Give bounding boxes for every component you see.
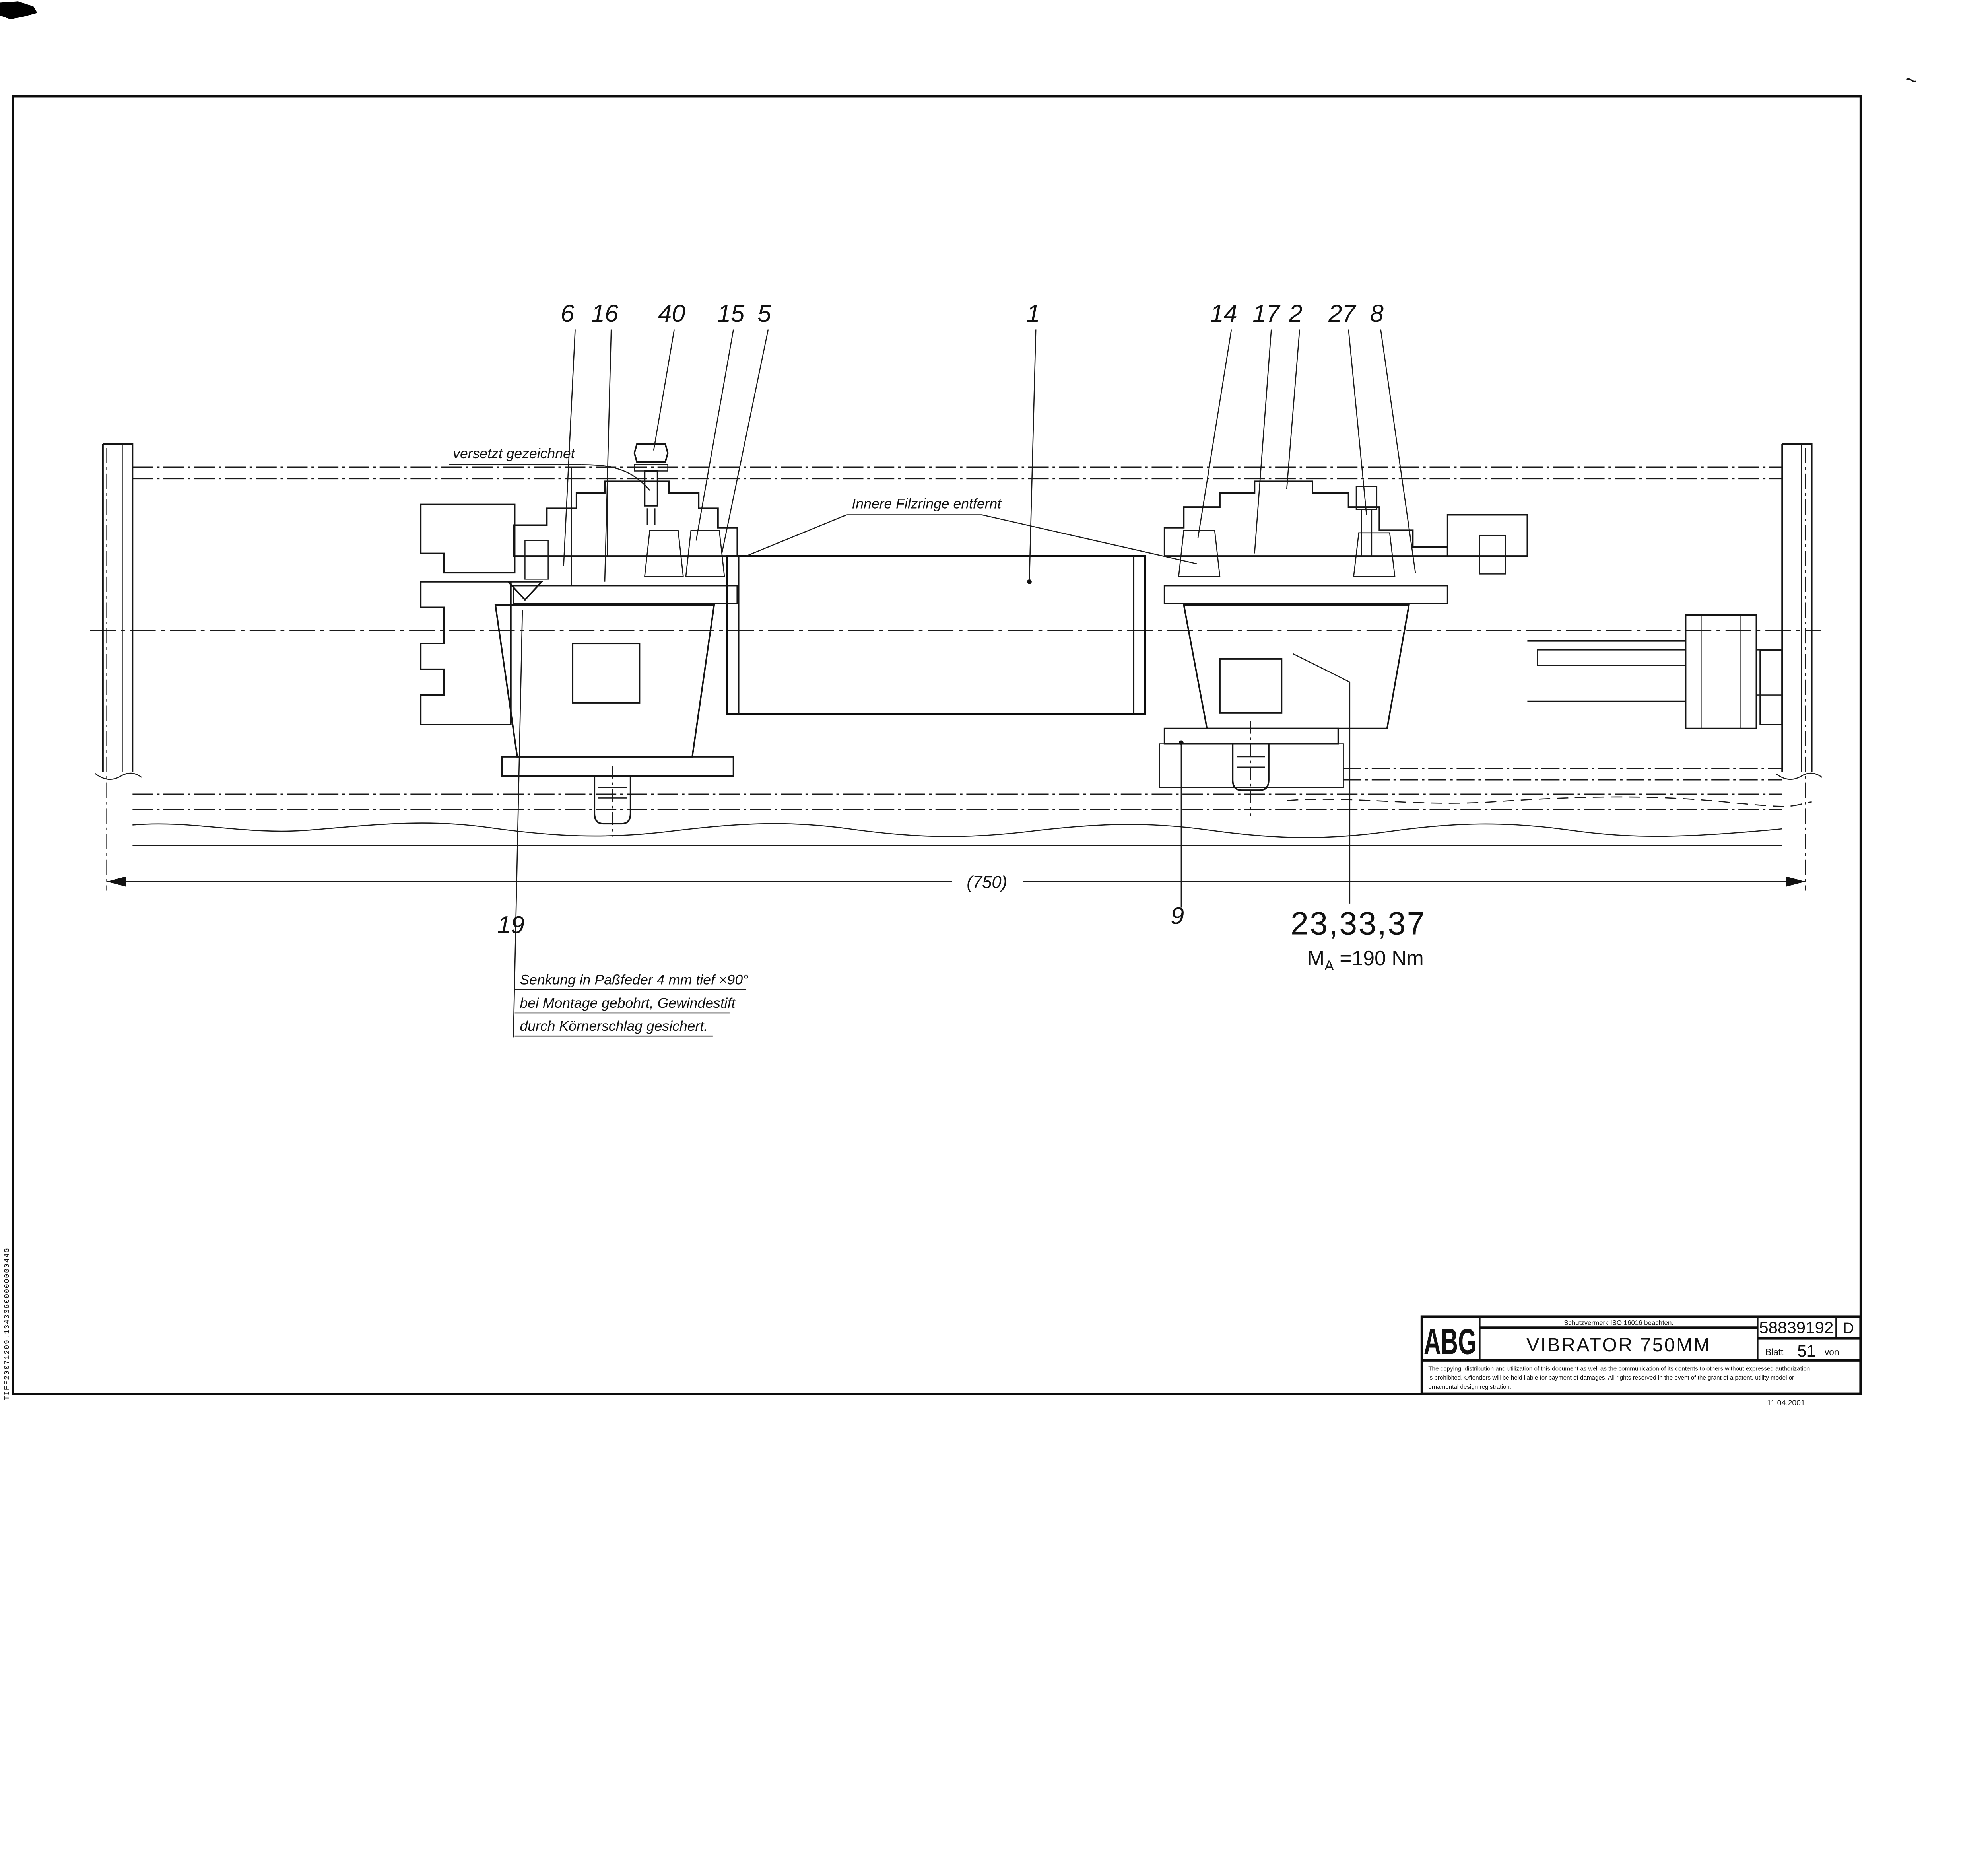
- technical-drawing-sheet: ~ TIFF20071209.1343360000000044G: [0, 0, 1988, 1407]
- sheet-number: 51: [1797, 1341, 1816, 1360]
- protection-note: Schutzvermerk ISO 16016 beachten.: [1564, 1319, 1673, 1327]
- part-label-40: 40: [658, 300, 685, 327]
- scan-edge-id-text: TIFF20071209.1343360000000044G: [4, 1248, 12, 1400]
- part-label-19: 19: [497, 911, 524, 939]
- part-label-8: 8: [1370, 300, 1384, 327]
- part-label-16: 16: [591, 300, 619, 327]
- torque-symbol: M: [1307, 947, 1324, 970]
- note-line-1: Senkung in Paßfeder 4 mm tief ×90°: [520, 972, 748, 988]
- legal-line-2: is prohibited. Offenders will be held li…: [1428, 1374, 1794, 1381]
- part-label-27: 27: [1328, 300, 1357, 327]
- abg-logo: ABG: [1424, 1322, 1477, 1362]
- sheet-label: Blatt: [1765, 1347, 1784, 1357]
- paper-background: [0, 0, 1988, 1407]
- part-label-5: 5: [757, 300, 771, 327]
- annotation-filzringe-text: Innere Filzringe entfernt: [852, 496, 1002, 511]
- part-label-17: 17: [1252, 300, 1281, 327]
- sheet-of-label: von: [1825, 1347, 1839, 1357]
- dimension-750-value: (750): [967, 873, 1007, 892]
- part-label-6: 6: [561, 300, 575, 327]
- part-label-15: 15: [717, 300, 745, 327]
- part-label-2: 2: [1289, 300, 1303, 327]
- group-label-23-33-37: 23,33,37: [1291, 906, 1426, 942]
- document-number: 58839192: [1759, 1318, 1833, 1337]
- drawing-title: VIBRATOR 750MM: [1526, 1334, 1711, 1356]
- revision-letter: D: [1843, 1320, 1854, 1337]
- title-block: ABG Schutzvermerk ISO 16016 beachten. VI…: [1422, 1317, 1861, 1407]
- part-label-14: 14: [1210, 300, 1237, 327]
- torque-value: =190 Nm: [1334, 947, 1424, 970]
- note-line-3: durch Körnerschlag gesichert.: [520, 1018, 708, 1034]
- legal-line-3: ornamental design registration.: [1428, 1384, 1511, 1390]
- part-label-1: 1: [1027, 300, 1040, 327]
- torque-subscript: A: [1324, 958, 1334, 974]
- note-line-2: bei Montage gebohrt, Gewindestift: [520, 995, 736, 1011]
- annotation-versetzt-text: versetzt gezeichnet: [453, 445, 576, 461]
- part-label-9: 9: [1171, 902, 1184, 930]
- drawing-date: 11.04.2001: [1767, 1399, 1805, 1407]
- legal-line-1: The copying, distribution and utilizatio…: [1428, 1366, 1810, 1372]
